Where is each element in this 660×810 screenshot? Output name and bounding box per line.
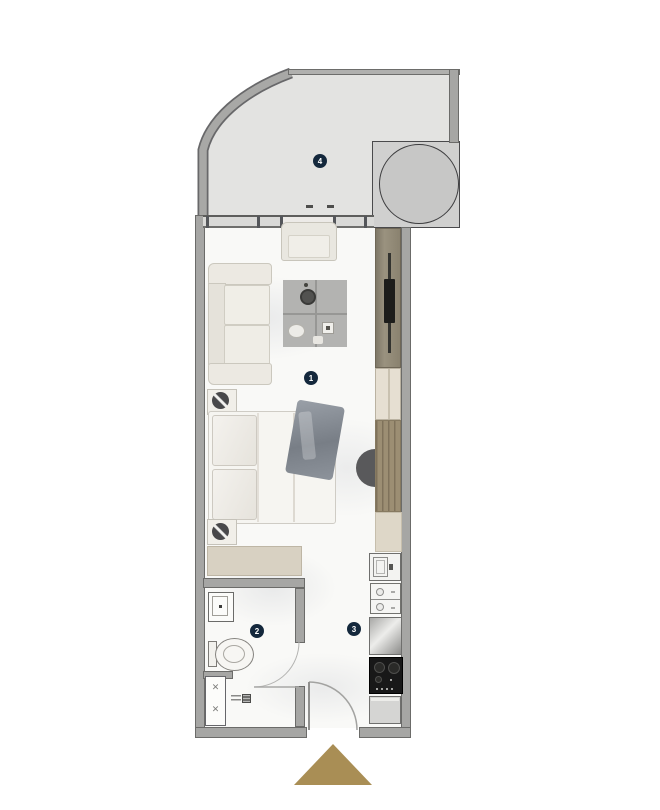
shower-tray: ✕ ✕ bbox=[205, 676, 226, 726]
marker-kitchen: 3 bbox=[347, 622, 361, 636]
curved-wall-outline bbox=[203, 73, 291, 222]
window-mullion bbox=[206, 216, 209, 228]
table-lamp-icon bbox=[212, 392, 229, 409]
shower-cross-icon: ✕ bbox=[206, 683, 225, 692]
cabinet-highlight bbox=[371, 698, 399, 701]
control-dot-icon bbox=[390, 679, 392, 681]
entrance-arrow-icon bbox=[294, 744, 372, 785]
plant-stem-icon bbox=[304, 283, 308, 287]
kitchen-faucet-icon bbox=[389, 564, 393, 570]
round-table bbox=[379, 144, 459, 224]
marker-bathroom: 2 bbox=[250, 624, 264, 638]
plant-icon bbox=[300, 289, 316, 305]
bathroom-sink bbox=[208, 592, 234, 622]
bathroom-right-wall-upper bbox=[295, 588, 305, 643]
control-dot-icon bbox=[376, 688, 378, 690]
kitchen-sink-basin-inner bbox=[376, 560, 385, 574]
blanket-fold bbox=[298, 411, 316, 460]
kitchen-cabinet bbox=[369, 696, 401, 724]
appliance-tick bbox=[391, 607, 395, 609]
duvet-edge bbox=[257, 413, 259, 522]
pillow bbox=[212, 415, 257, 466]
tv-wall-panel bbox=[375, 228, 401, 368]
sofa-arm bbox=[208, 263, 272, 285]
media-cabinet bbox=[375, 368, 401, 420]
control-dot-icon bbox=[381, 688, 383, 690]
terrace-top-wall bbox=[288, 69, 460, 75]
burner-icon bbox=[374, 662, 385, 673]
appliance-dial-icon bbox=[376, 588, 384, 596]
rug-line bbox=[283, 313, 347, 315]
sofa-cushion bbox=[224, 285, 270, 325]
terrace-right-wall bbox=[449, 69, 459, 143]
sofa-cushion bbox=[224, 325, 270, 365]
decor-box-icon bbox=[322, 322, 334, 334]
cabinet-door-line bbox=[388, 369, 390, 419]
wardrobe bbox=[375, 420, 401, 512]
floor-drain-icon bbox=[242, 694, 251, 703]
floor-plan-canvas: ✕ ✕ 1 2 3 4 bbox=[0, 0, 660, 810]
bathroom-top-wall bbox=[203, 578, 305, 588]
decor-pad-icon bbox=[313, 336, 323, 344]
appliance-unit bbox=[370, 583, 401, 614]
marker-living-area: 1 bbox=[304, 371, 318, 385]
sofa-arm bbox=[208, 363, 272, 385]
control-dot-icon bbox=[391, 688, 393, 690]
window-stop bbox=[306, 205, 313, 208]
control-dot-icon bbox=[386, 688, 388, 690]
window-stop bbox=[327, 205, 334, 208]
pillow bbox=[212, 469, 257, 520]
tv-screen bbox=[384, 279, 395, 323]
sofa bbox=[208, 263, 272, 385]
sink-faucet-icon bbox=[219, 605, 222, 608]
window-mullion bbox=[257, 216, 260, 228]
shower-cross-icon: ✕ bbox=[206, 705, 225, 714]
steel-counter bbox=[369, 617, 402, 655]
table-lamp-icon bbox=[212, 523, 229, 540]
bottom-wall-right bbox=[359, 727, 411, 738]
armchair-seat bbox=[288, 235, 330, 258]
kitchen-sink-basin bbox=[373, 557, 388, 577]
appliance-dial-icon bbox=[376, 603, 384, 611]
appliance-tick bbox=[391, 591, 395, 593]
window-mullion bbox=[364, 216, 367, 228]
toilet-bowl bbox=[215, 638, 254, 671]
armchair bbox=[281, 222, 337, 261]
bathroom-right-wall-lower bbox=[295, 686, 305, 727]
appliance-divider bbox=[371, 599, 400, 600]
dresser bbox=[207, 546, 302, 576]
marker-terrace: 4 bbox=[313, 154, 327, 168]
burner-icon bbox=[388, 662, 400, 674]
burner-icon bbox=[375, 676, 382, 683]
cooktop bbox=[369, 657, 403, 694]
curved-wall bbox=[203, 73, 291, 222]
left-wall bbox=[195, 215, 205, 738]
bottom-wall-left bbox=[195, 727, 307, 738]
wardrobe-cabinet bbox=[375, 512, 402, 552]
floor-drain-lines-icon bbox=[231, 695, 241, 703]
tray-icon bbox=[288, 324, 305, 338]
coffee-rug bbox=[283, 280, 347, 347]
kitchen-sink-counter bbox=[369, 553, 401, 581]
toilet-bowl-inner bbox=[223, 645, 245, 663]
decor-box-detail bbox=[326, 326, 330, 330]
